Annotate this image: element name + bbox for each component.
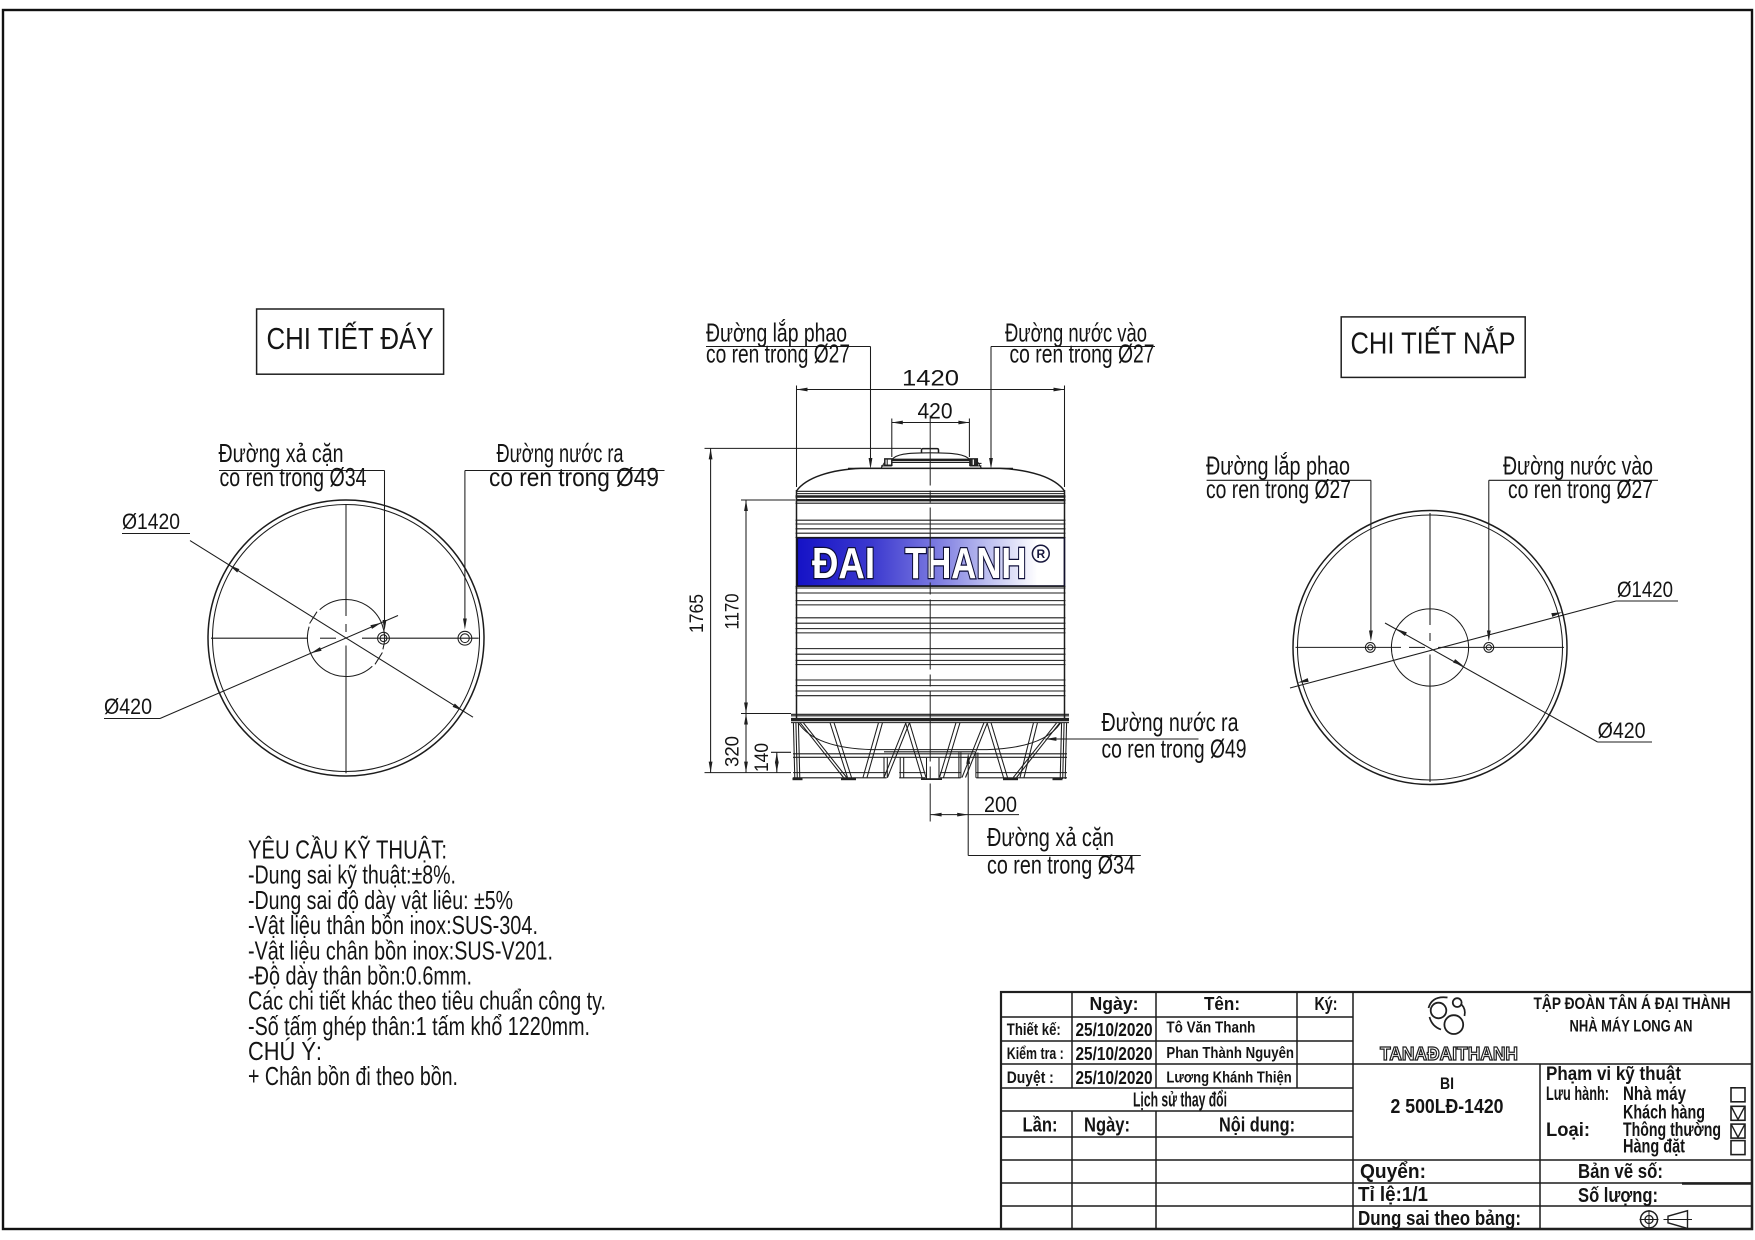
svg-text:THANH: THANH — [905, 539, 1027, 588]
svg-text:140: 140 — [752, 743, 773, 772]
svg-text:co ren trong Ø49: co ren trong Ø49 — [1102, 734, 1247, 764]
svg-text:R: R — [1036, 547, 1045, 561]
svg-text:Bản vẽ số:: Bản vẽ số: — [1578, 1161, 1663, 1183]
svg-text:200: 200 — [984, 792, 1017, 817]
svg-text:co ren trong Ø34: co ren trong Ø34 — [987, 850, 1135, 880]
svg-text:25/10/2020: 25/10/2020 — [1076, 1068, 1153, 1088]
svg-text:25/10/2020: 25/10/2020 — [1076, 1020, 1153, 1040]
svg-text:CHI TIẾT NẮP: CHI TIẾT NẮP — [1351, 325, 1516, 361]
svg-text:Ø1420: Ø1420 — [1617, 577, 1673, 602]
svg-text:ĐAI: ĐAI — [812, 539, 875, 588]
svg-text:TẬP ĐOÀN TÂN Á ĐẠI THÀNH: TẬP ĐOÀN TÂN Á ĐẠI THÀNH — [1534, 994, 1731, 1013]
svg-text:Kiểm tra :: Kiểm tra : — [1007, 1045, 1064, 1063]
svg-text:1765: 1765 — [687, 594, 708, 633]
svg-text:Ø420: Ø420 — [1598, 718, 1646, 743]
svg-text:co ren trong Ø34: co ren trong Ø34 — [220, 462, 367, 492]
svg-text:co ren trong Ø49: co ren trong Ø49 — [489, 462, 659, 492]
svg-text:Ký:: Ký: — [1315, 994, 1338, 1014]
svg-text:Lưu hành:: Lưu hành: — [1546, 1084, 1609, 1105]
svg-text:Đường xả cặn: Đường xả cặn — [987, 822, 1114, 852]
svg-text:420: 420 — [918, 399, 953, 424]
svg-text:BI: BI — [1440, 1074, 1454, 1093]
svg-text:co ren trong Ø27: co ren trong Ø27 — [1206, 474, 1351, 504]
svg-text:TANAĐAITHANH: TANAĐAITHANH — [1380, 1044, 1518, 1064]
svg-text:1420: 1420 — [902, 366, 959, 391]
svg-text:Tên:: Tên: — [1204, 994, 1240, 1014]
svg-text:Đường nước ra: Đường nước ra — [1102, 707, 1239, 737]
svg-text:+ Chân bồn đi theo bồn.: + Chân bồn đi theo bồn. — [248, 1061, 458, 1091]
svg-text:25/10/2020: 25/10/2020 — [1076, 1044, 1153, 1064]
svg-text:co ren trong Ø27: co ren trong Ø27 — [1010, 339, 1155, 369]
svg-text:co ren trong Ø27: co ren trong Ø27 — [1508, 474, 1653, 504]
svg-text:co ren trong Ø27: co ren trong Ø27 — [706, 339, 850, 369]
svg-text:Quyển:: Quyển: — [1360, 1161, 1426, 1183]
svg-text:Lịch sử thay đổi: Lịch sử thay đổi — [1133, 1090, 1227, 1112]
svg-text:2 500LĐ-1420: 2 500LĐ-1420 — [1391, 1096, 1504, 1118]
svg-text:Dung sai theo bảng:: Dung sai theo bảng: — [1358, 1208, 1521, 1230]
svg-text:Loại:: Loại: — [1546, 1120, 1590, 1141]
svg-text:NHÀ MÁY LONG AN: NHÀ MÁY LONG AN — [1570, 1017, 1693, 1036]
svg-text:Phạm vi kỹ thuật: Phạm vi kỹ thuật — [1546, 1064, 1682, 1085]
svg-text:Lương Khánh Thiện: Lương Khánh Thiện — [1166, 1070, 1291, 1087]
svg-text:Tô Văn Thanh: Tô Văn Thanh — [1166, 1020, 1255, 1037]
svg-text:Lần:: Lần: — [1023, 1115, 1058, 1137]
svg-text:Ø420: Ø420 — [104, 694, 152, 719]
svg-text:Thiết kế:: Thiết kế: — [1007, 1021, 1061, 1039]
svg-text:Hàng đặt: Hàng đặt — [1623, 1137, 1686, 1158]
svg-text:Tỉ lệ:1/1: Tỉ lệ:1/1 — [1358, 1184, 1428, 1206]
svg-text:Phan Thành Nguyên: Phan Thành Nguyên — [1166, 1045, 1294, 1062]
svg-text:Ngày:: Ngày: — [1090, 994, 1139, 1014]
svg-text:CHI TIẾT ĐÁY: CHI TIẾT ĐÁY — [267, 321, 434, 356]
svg-text:Ngày:: Ngày: — [1084, 1115, 1130, 1137]
svg-text:Nội dung:: Nội dung: — [1219, 1115, 1295, 1137]
svg-text:Ø1420: Ø1420 — [122, 509, 180, 534]
svg-text:Số lượng:: Số lượng: — [1578, 1185, 1658, 1207]
svg-text:1170: 1170 — [723, 594, 744, 630]
svg-text:320: 320 — [723, 736, 744, 767]
svg-text:Duyệt :: Duyệt : — [1007, 1069, 1054, 1087]
